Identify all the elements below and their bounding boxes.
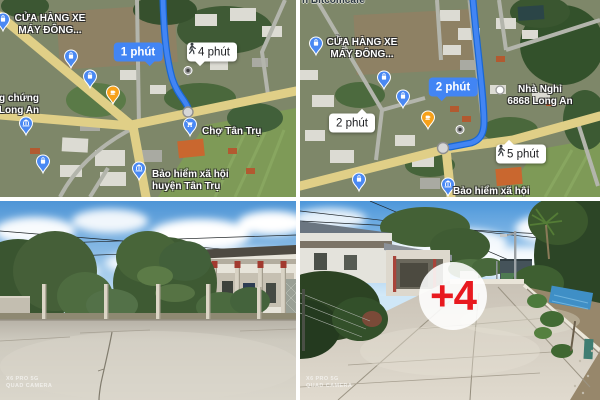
poi-dot-icon (496, 86, 504, 94)
drive-time-badge: 1 phút (114, 43, 163, 62)
photo-gallery-grid: CỬA HÀNG XE MÁY ĐÔNG... g chứng Long An … (0, 0, 600, 400)
photo-tile-2[interactable]: +4 X6 PRO 5G QUAD CAMERA (300, 201, 600, 400)
poi-label-shop: CỬA HÀNG XE MÁY ĐÔNG... (327, 37, 398, 61)
map-tile-route-2[interactable]: n Bitcomcafe CỬA HÀNG XE MÁY ĐÔNG... Nhà… (300, 0, 600, 197)
poi-label-cafe: n Bitcomcafe (302, 0, 365, 7)
walk-time-badge: 5 phút (496, 145, 546, 164)
more-photos-count: +4 (430, 272, 476, 320)
more-photos-overlay[interactable]: +4 (419, 262, 487, 330)
route-end-circle (183, 107, 193, 117)
camera-watermark: X6 PRO 5G QUAD CAMERA (306, 376, 352, 390)
photo-tile-1[interactable]: X6 PRO 5G QUAD CAMERA (0, 201, 296, 400)
poi-label-notary: g chứng Long An (0, 93, 39, 117)
street-photo-1 (0, 201, 296, 400)
walk-time-badge: 4 phút (187, 43, 237, 62)
poi-label-shop: CỬA HÀNG XE MÁY ĐÔNG... (15, 13, 86, 37)
camera-watermark: X6 PRO 5G QUAD CAMERA (6, 376, 52, 390)
poi-label-insurance: Bảo hiểm xã hội huyện Tân Trụ (453, 186, 530, 197)
poi-label-hotel: Nhà Nghỉ 6868 Long An (507, 84, 572, 108)
poi-label-insurance: Bảo hiểm xã hội huyện Tân Trụ (152, 169, 229, 193)
drive-time-badge: 2 phút (429, 78, 478, 97)
poi-label-market: Chợ Tân Trụ (202, 126, 261, 138)
route-end-circle (438, 143, 449, 154)
drive-time-alt-badge: 2 phút (329, 114, 375, 133)
map-tile-route-1[interactable]: CỬA HÀNG XE MÁY ĐÔNG... g chứng Long An … (0, 0, 296, 197)
